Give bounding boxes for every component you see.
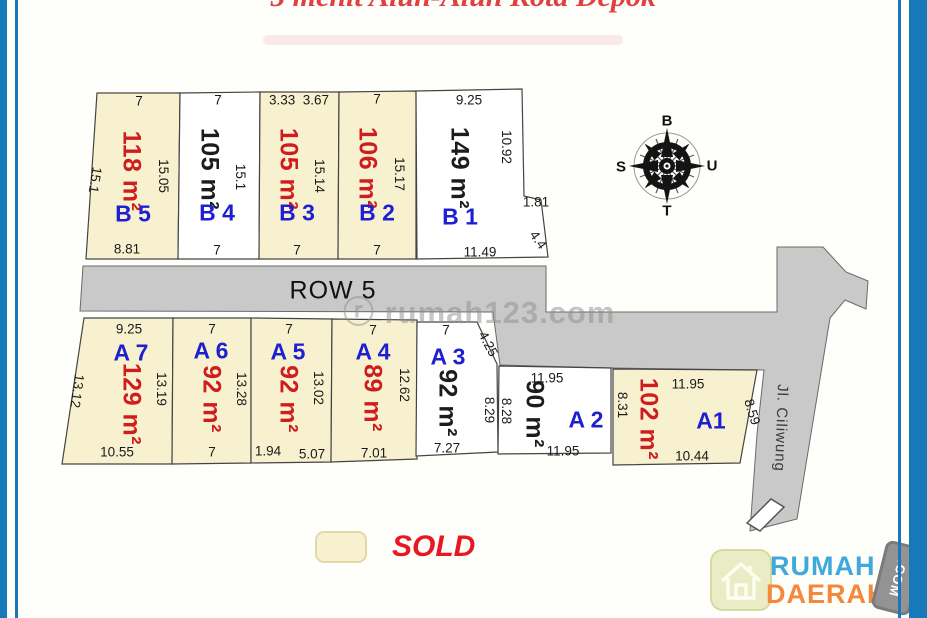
plot-a6-label: A 6 xyxy=(194,340,229,363)
plot-a4-dim-bottom: 7.01 xyxy=(361,446,387,460)
plot-a7-area: 129 m² xyxy=(119,363,144,445)
plot-b1-dim-right: 10.92 xyxy=(499,130,513,164)
plot-b4-area: 105 m² xyxy=(197,128,222,210)
plot-a6-area: 92 m² xyxy=(199,365,224,433)
frame-left-bar xyxy=(0,0,7,618)
watermark: ⓡ rumah123.com xyxy=(343,287,615,332)
frame-right-bar xyxy=(909,0,927,618)
plot-a5-dim-right: 13.02 xyxy=(311,371,325,405)
plot-a3-dim-right: 8.29 xyxy=(482,397,496,423)
plot-a1-dim-bottom: 10.44 xyxy=(675,449,709,463)
plot-b5-dim-right: 15.05 xyxy=(156,159,170,193)
plot-b4-dim-top: 7 xyxy=(214,93,222,107)
plot-b2-label: B 2 xyxy=(359,202,395,225)
plot-b3-dim-right: 15.14 xyxy=(312,159,326,193)
logo-house-icon xyxy=(710,549,772,611)
road-row5-label: ROW 5 xyxy=(290,279,377,304)
plot-b3-label: B 3 xyxy=(279,202,315,225)
plot-b3-area: 105 m² xyxy=(276,128,301,210)
plot-a3-area: 92 m² xyxy=(435,369,460,437)
plot-a5-label: A 5 xyxy=(271,341,306,364)
plot-a3-dim-bottom: 7.27 xyxy=(434,441,460,455)
compass-rose xyxy=(629,128,705,204)
plot-a4-dim-right: 12.62 xyxy=(397,368,411,402)
plot-a2-area: 90 m² xyxy=(522,380,547,448)
logo-word-rumah: RUMAH xyxy=(770,551,876,582)
compass-letter-left: S xyxy=(616,160,626,175)
plot-b3-dim-bottom: 7 xyxy=(293,243,301,257)
plot-b5-label: B 5 xyxy=(115,203,151,226)
plot-a5-dim-top: 7 xyxy=(285,322,293,336)
plot-b1-label: B 1 xyxy=(442,206,478,229)
plot-b2-dim-bottom: 7 xyxy=(373,243,381,257)
plot-b5-dim-top: 7 xyxy=(135,94,143,108)
frame-right-line xyxy=(898,0,901,618)
plot-a4-dim-top: 7 xyxy=(369,323,377,337)
plot-a1-area: 102 m² xyxy=(636,378,661,460)
plot-a3-dim-top: 7 xyxy=(442,323,450,337)
plot-a1-label: A1 xyxy=(696,410,725,433)
plot-a5-dim-bottom: 5.07 xyxy=(299,447,325,461)
plot-b1-dim-step: 1.81 xyxy=(523,195,549,209)
plot-a2-dim-bottom: 11.95 xyxy=(547,444,580,458)
compass-letter-bottom: T xyxy=(662,204,671,219)
plot-a6-dim-top: 7 xyxy=(208,322,216,336)
plot-a3-label: A 3 xyxy=(431,346,466,369)
plot-a5-area: 92 m² xyxy=(276,365,301,433)
plot-b1-shape xyxy=(416,89,548,259)
plot-b4-dim-bottom: 7 xyxy=(213,243,221,257)
plot-b1-dim-top: 9.25 xyxy=(456,93,482,107)
plot-a4-label: A 4 xyxy=(356,341,391,364)
legend-sold-label: SOLD xyxy=(392,530,475,564)
logo-word-daerah: DAERAH xyxy=(766,579,888,610)
compass-letter-right: U xyxy=(707,159,718,174)
plot-a2-label: A 2 xyxy=(569,409,604,432)
road-street-label: Jl. Ciliwung xyxy=(772,384,790,472)
plot-a2-dim-left: 8.28 xyxy=(499,398,513,424)
plot-b3-dim-top: 3.33 3.67 xyxy=(269,93,329,107)
plot-b5-dim-bottom: 8.81 xyxy=(114,242,140,256)
plot-b2-dim-top: 7 xyxy=(373,92,381,106)
legend-sold-swatch xyxy=(315,531,367,563)
plot-b1-dim-bottom: 11.49 xyxy=(464,245,497,259)
plot-a7-dim-bottom: 10.55 xyxy=(100,445,134,459)
compass-letter-top: B xyxy=(662,114,673,129)
plot-a4-area: 89 m² xyxy=(360,364,385,432)
plot-a6-dim-right: 13.28 xyxy=(234,372,248,406)
plot-a1-dim-left: 8.31 xyxy=(615,392,629,418)
plot-b2-dim-right: 15.17 xyxy=(392,157,406,191)
plot-b4-dim-right: 15.1 xyxy=(233,164,247,190)
plot-a5-dim-bottom-left: 1.94 xyxy=(255,444,281,458)
frame-left-line xyxy=(15,0,18,618)
plot-b5-dim-left: 15.1 xyxy=(86,166,103,194)
plot-a7-label: A 7 xyxy=(114,342,149,365)
plot-b5-area: 118 m² xyxy=(119,131,144,212)
plot-a6-dim-bottom: 7 xyxy=(208,445,216,459)
plot-b1-area: 149 m² xyxy=(447,127,472,209)
plot-b4-label: B 4 xyxy=(199,202,235,225)
plot-a7-dim-top: 9.25 xyxy=(116,322,142,336)
plot-a7-dim-right: 13.19 xyxy=(154,372,168,406)
plot-a1-dim-top: 11.95 xyxy=(672,377,705,391)
site-plan: 5 menit Alun-Alun Kota Depok xyxy=(0,0,927,618)
plot-b2-area: 106 m² xyxy=(355,127,380,209)
